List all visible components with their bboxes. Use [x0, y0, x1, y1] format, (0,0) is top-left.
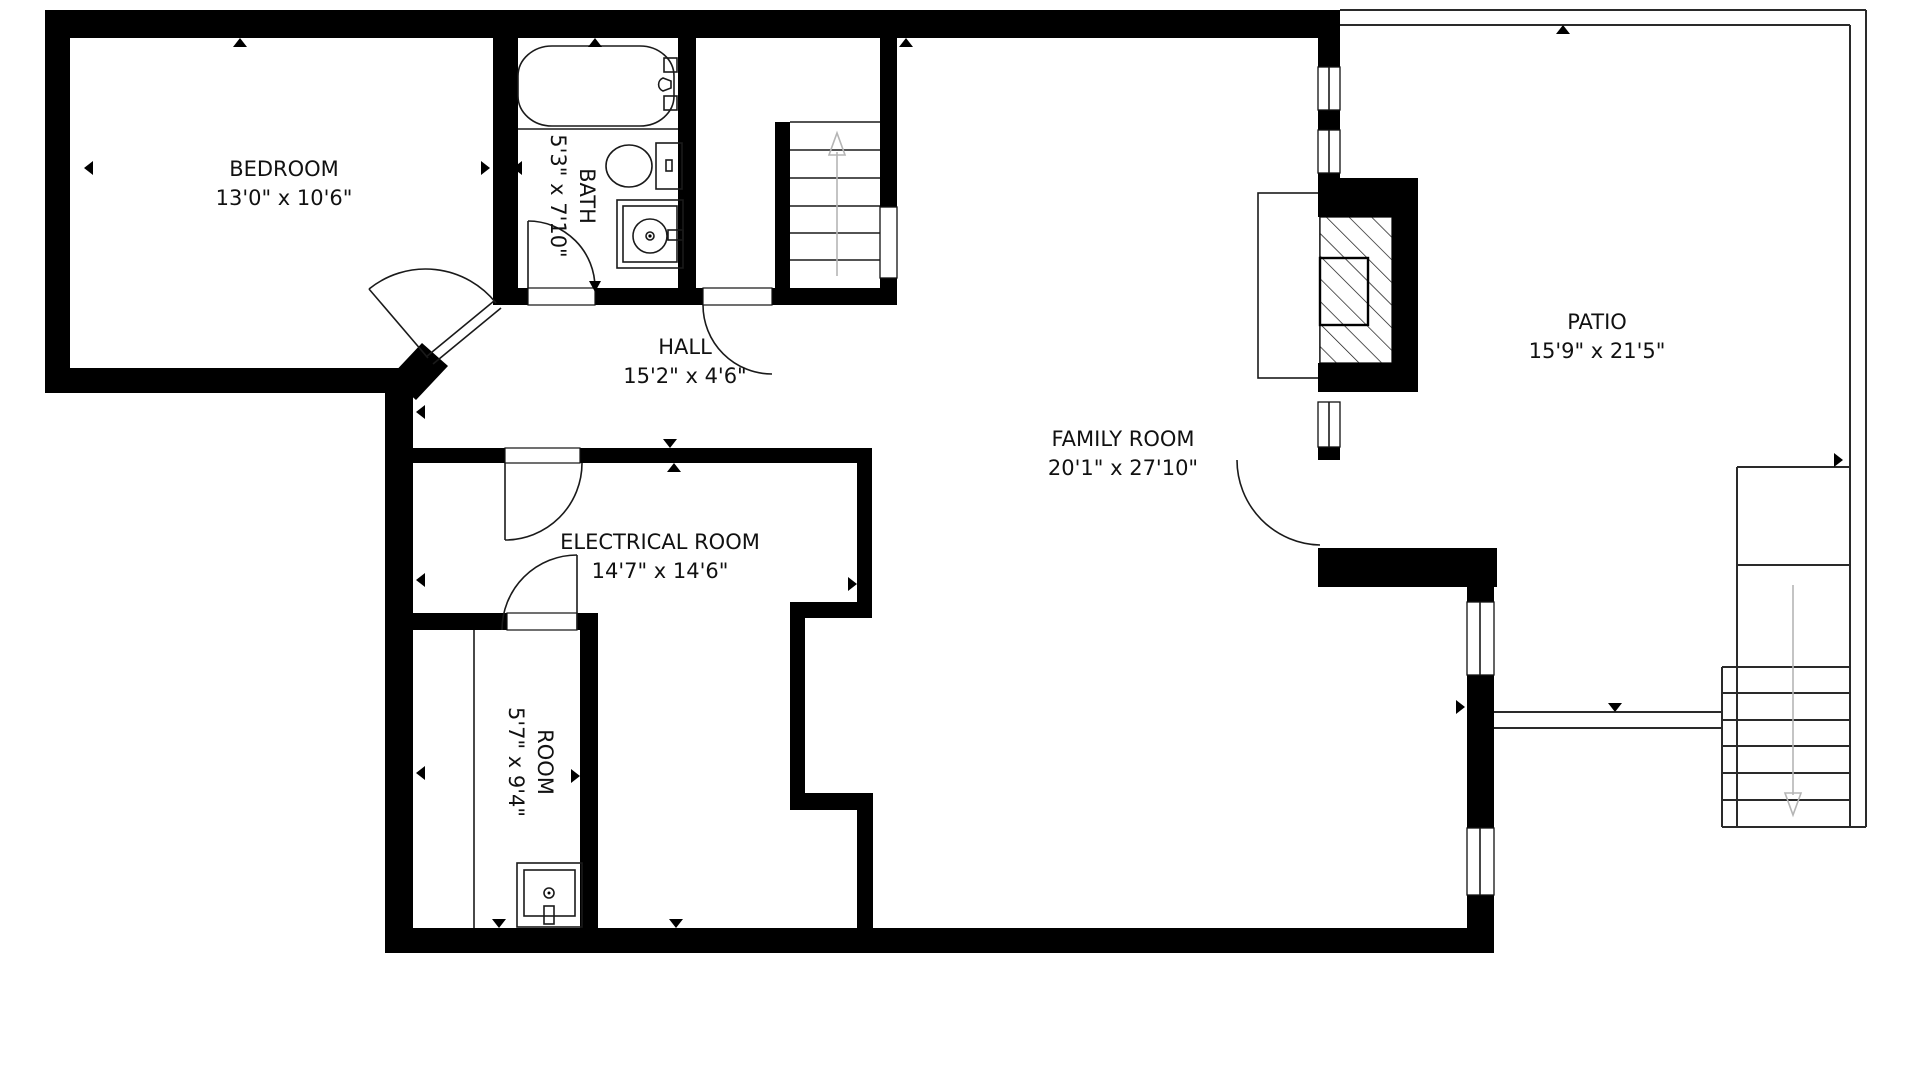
room-name: ROOM: [530, 707, 559, 817]
window: [1318, 402, 1340, 447]
walls: [45, 10, 1497, 953]
room-name: BEDROOM: [216, 155, 353, 184]
room-name: PATIO: [1529, 308, 1666, 337]
room-dims: 14'7" x 14'6": [560, 557, 760, 586]
room-dims: 15'2" x 4'6": [623, 362, 746, 391]
room-name: HALL: [623, 333, 746, 362]
room-dims: 5'3" x 7'10": [543, 134, 572, 257]
patio-door: [1237, 458, 1320, 545]
label-hall: HALL 15'2" x 4'6": [623, 333, 746, 391]
window: [1318, 130, 1340, 173]
hearth: [1258, 193, 1320, 378]
toilet: [606, 143, 682, 189]
room-name: FAMILY ROOM: [1048, 425, 1198, 454]
room-dims: 15'9" x 21'5": [1529, 337, 1666, 366]
patio-boundary: [1340, 10, 1866, 827]
room-dims: 5'7" x 9'4": [501, 707, 530, 817]
electrical-panel: [517, 863, 582, 927]
room-dims: 13'0" x 10'6": [216, 184, 353, 213]
firebox: [1320, 258, 1368, 325]
label-patio: PATIO 15'9" x 21'5": [1529, 308, 1666, 366]
fireplace: [1258, 178, 1418, 392]
stairs-up-arrow: [829, 133, 845, 276]
bathtub: [518, 46, 677, 126]
label-room: ROOM 5'7" x 9'4": [501, 707, 559, 817]
electrical-door-top: [505, 448, 582, 540]
label-bedroom: BEDROOM 13'0" x 10'6": [216, 155, 353, 213]
window: [1318, 67, 1340, 110]
room-dims: 20'1" x 27'10": [1048, 454, 1198, 483]
bedroom-door: [369, 269, 501, 364]
wall-niche: [880, 207, 897, 278]
label-family-room: FAMILY ROOM 20'1" x 27'10": [1048, 425, 1198, 483]
label-electrical-room: ELECTRICAL ROOM 14'7" x 14'6": [560, 528, 760, 586]
exterior-stairs: [1722, 467, 1866, 827]
room-name: BATH: [572, 134, 601, 257]
floor-plan: BEDROOM 13'0" x 10'6" BATH 5'3" x 7'10" …: [0, 0, 1920, 1080]
stairs-down-arrow: [1785, 585, 1801, 815]
window: [1467, 602, 1494, 675]
room-name: ELECTRICAL ROOM: [560, 528, 760, 557]
window: [1467, 828, 1494, 895]
interior-stairs: [790, 122, 880, 276]
sink: [617, 200, 683, 268]
label-bath: BATH 5'3" x 7'10": [543, 134, 601, 257]
